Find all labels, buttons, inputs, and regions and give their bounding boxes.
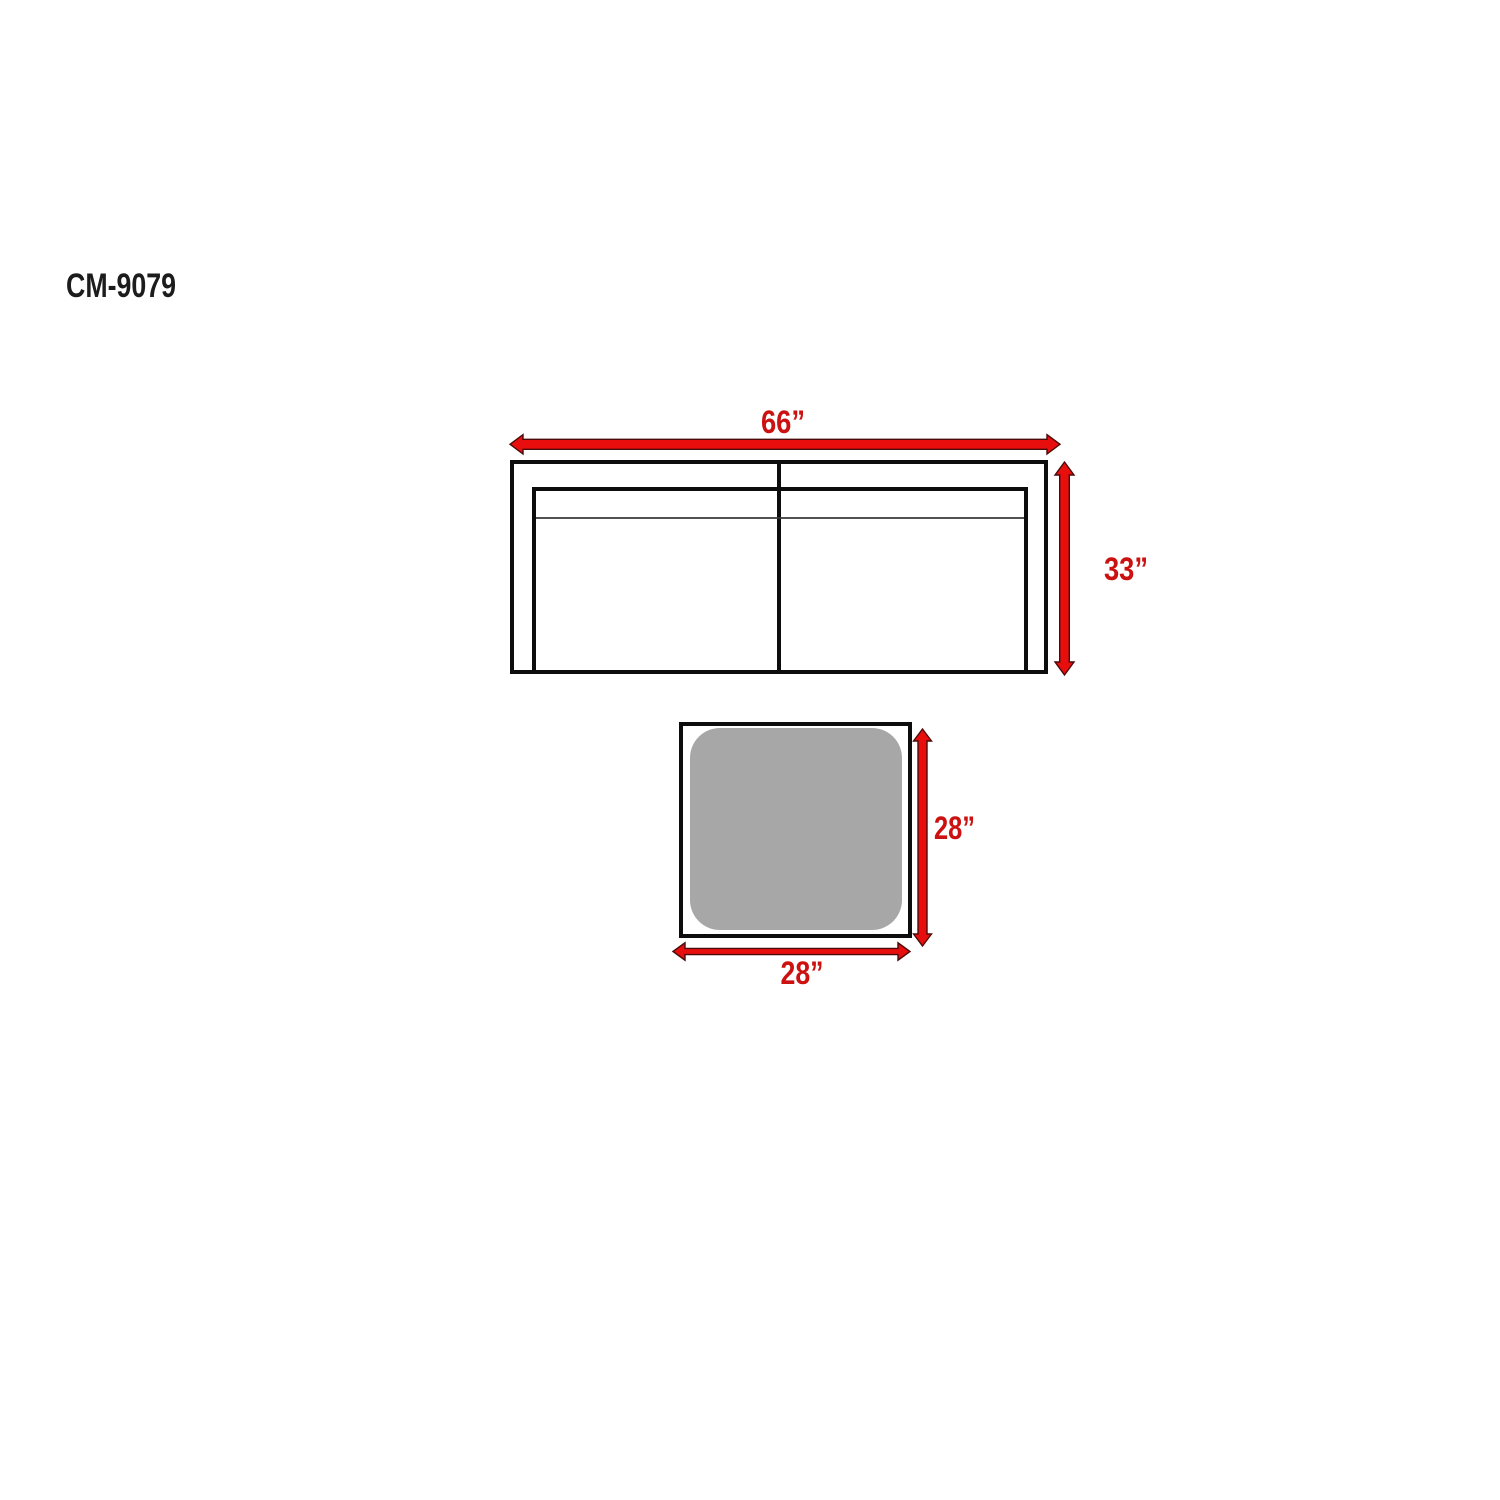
svg-text:28”: 28” bbox=[781, 955, 824, 991]
svg-text:28”: 28” bbox=[934, 810, 975, 846]
svg-text:CM-9079: CM-9079 bbox=[66, 267, 176, 305]
svg-text:33”: 33” bbox=[1104, 551, 1148, 587]
svg-text:66”: 66” bbox=[761, 404, 805, 440]
